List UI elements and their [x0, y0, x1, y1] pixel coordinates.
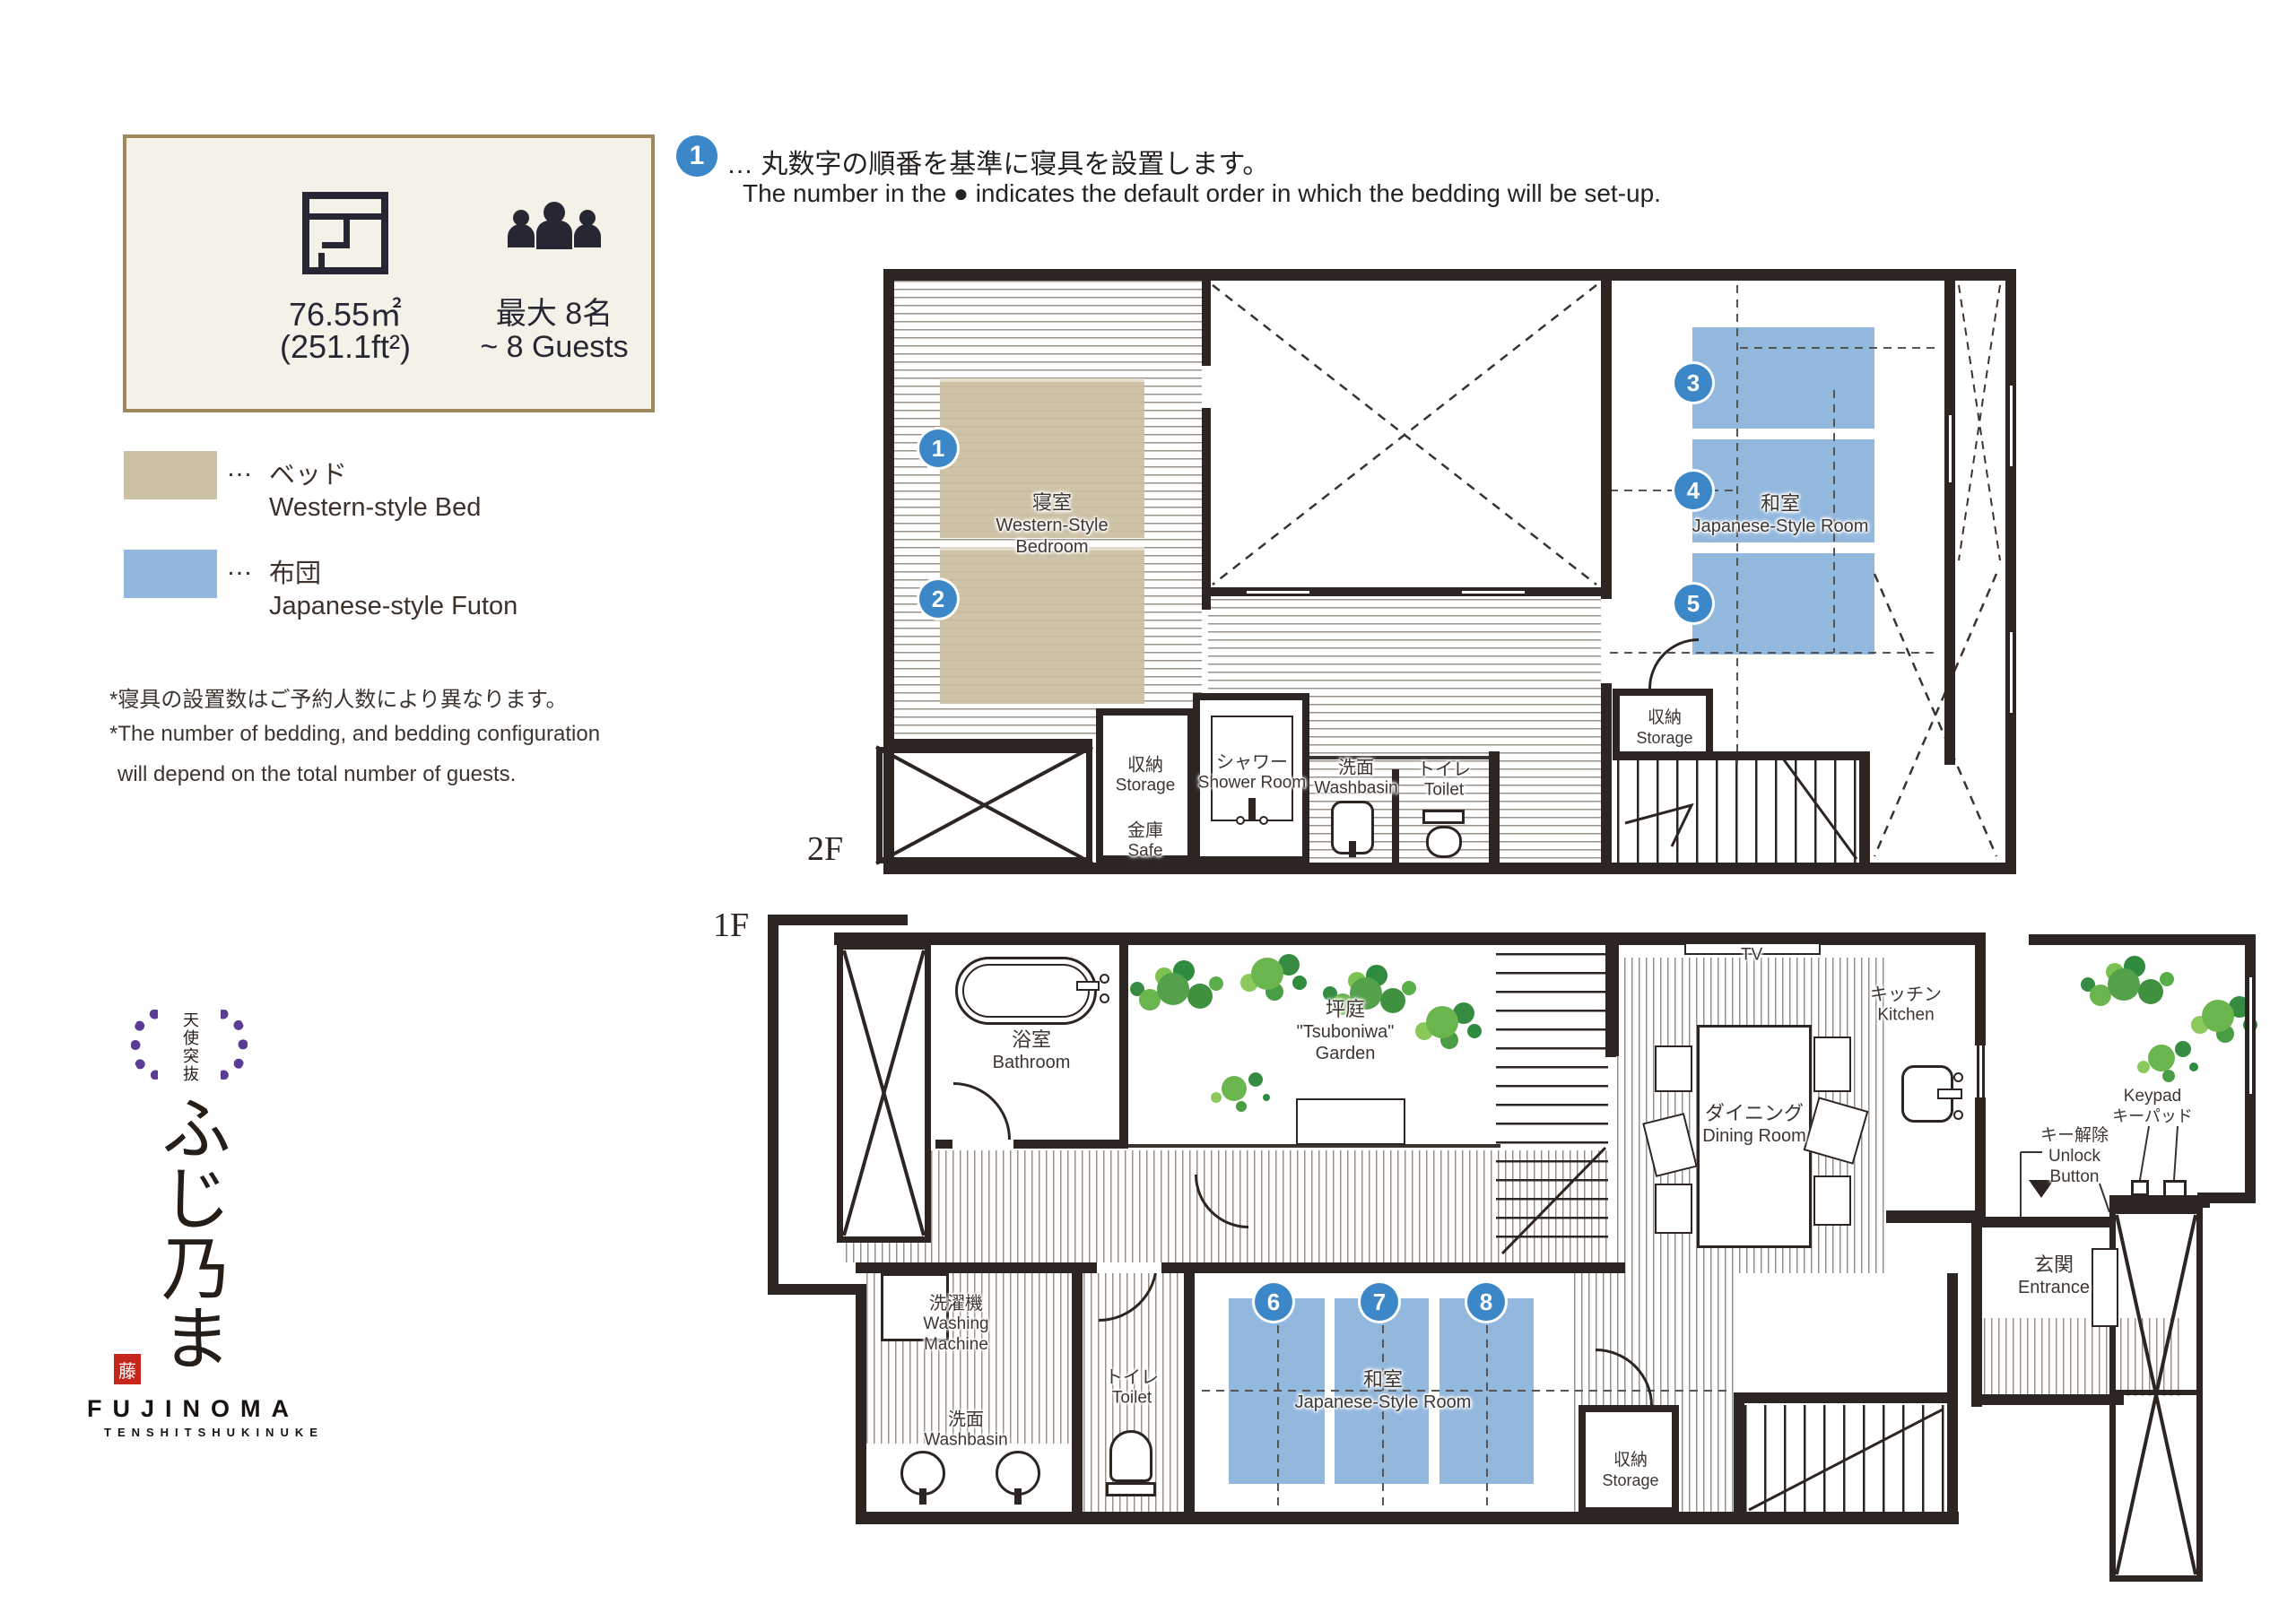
- label-jp: 収納: [1602, 1451, 1658, 1471]
- label-en: Kitchen: [1870, 1006, 1942, 1027]
- label-en: Washbasin: [924, 1431, 1007, 1452]
- bedding-badge-1: 1: [919, 429, 957, 467]
- window: [1977, 1045, 1985, 1097]
- bedding-badge-8: 8: [1467, 1283, 1505, 1321]
- wall: [1613, 751, 1870, 760]
- wall: [2197, 1193, 2256, 1203]
- shower-knob: [1236, 816, 1245, 825]
- legend-futon-label-en: Japanese-style Futon: [269, 592, 517, 621]
- room-label-toilet-1f: トイレ Toilet: [1105, 1367, 1159, 1409]
- chair: [1813, 1175, 1851, 1226]
- label-jp: ダイニング: [1702, 1102, 1806, 1125]
- room-label-garden: 坪庭 "Tsuboniwa" Garden: [1297, 998, 1395, 1064]
- bedding-order-badge: 1: [676, 135, 717, 177]
- label-jp: 和室: [1692, 492, 1869, 516]
- logo-name-calligraphy: ふじ乃ま: [155, 1092, 225, 1372]
- wall: [1944, 281, 1955, 765]
- label-jp: 洗濯機: [923, 1293, 988, 1314]
- chair: [1655, 1184, 1692, 1234]
- toilet-2f-tank: [1422, 810, 1465, 824]
- bedding-badge-2: 2: [919, 580, 957, 618]
- label-en: Button: [2040, 1167, 2109, 1187]
- chair: [1655, 1045, 1692, 1092]
- label-jp: 収納: [1116, 755, 1176, 776]
- wall: [768, 1284, 866, 1295]
- room-label-storage-2f: 収納 Storage: [1116, 755, 1176, 797]
- kitchen-tap: [1953, 1110, 1963, 1120]
- wall: [1072, 1262, 1083, 1514]
- window: [2007, 632, 2015, 713]
- label-en: Safe: [1127, 842, 1163, 863]
- wall: [883, 863, 2016, 874]
- wall: [1859, 760, 1870, 863]
- label-jp: 洗面: [1314, 758, 1397, 779]
- bath-faucet: [1100, 993, 1109, 1003]
- floor2-label: 2F: [807, 829, 843, 869]
- label-jp: 寝室: [996, 491, 1108, 515]
- label-jp: キッチン: [1870, 984, 1942, 1006]
- label-en: Dining Room: [1702, 1125, 1806, 1147]
- label-jp: 和室: [1295, 1368, 1472, 1392]
- wall: [856, 1284, 866, 1524]
- bedding-badge-4: 4: [1674, 472, 1712, 509]
- room-label-bedroom-2f: 寝室 Western-Style Bedroom: [996, 491, 1108, 558]
- label-jp: キーパッド: [2112, 1107, 2193, 1127]
- logo-mon-text: 天使突抜: [178, 1011, 202, 1083]
- wall: [1202, 281, 1211, 366]
- bath-faucet: [1100, 974, 1109, 984]
- garden-bench: [1296, 1098, 1405, 1145]
- label-jp: 玄関: [2018, 1253, 2090, 1277]
- window: [2007, 386, 2015, 466]
- basin-tap: [919, 1488, 926, 1505]
- wall: [1184, 1262, 1195, 1514]
- wall: [1734, 1392, 1744, 1524]
- label-en: Storage: [1636, 729, 1692, 749]
- logo-seal: 藤: [114, 1354, 141, 1384]
- wall: [883, 739, 1092, 750]
- floor1-label: 1F: [713, 906, 749, 945]
- room-label-japanese-room-2f: 和室 Japanese-Style Room: [1692, 492, 1869, 537]
- guests-icon: [508, 224, 535, 247]
- room-label-entrance: 玄関 Entrance: [2018, 1253, 2090, 1298]
- entrance-cabinet: [2092, 1248, 2118, 1327]
- legend-futon-dots: …: [226, 551, 253, 582]
- bedding-badge-6: 6: [1255, 1283, 1292, 1321]
- door-gap: [952, 1140, 1013, 1149]
- label-en: "Tsuboniwa": [1297, 1021, 1395, 1043]
- room-label-washbasin-2f: 洗面 Washbasin: [1314, 758, 1397, 800]
- label-en: Washing: [923, 1314, 988, 1335]
- wall: [768, 915, 778, 1295]
- room-label-japanese-room-1f: 和室 Japanese-Style Room: [1295, 1368, 1472, 1413]
- label-en: Storage: [1116, 776, 1176, 797]
- note-line-2: *The number of bedding, and bedding conf…: [109, 722, 600, 747]
- guests-max-en: ~ 8 Guests: [480, 330, 628, 365]
- label-en: Shower Room: [1198, 774, 1306, 794]
- room-label-storage-1f: 収納 Storage: [1602, 1451, 1658, 1490]
- wall: [856, 1512, 1959, 1524]
- label-en: Western-Style: [996, 515, 1108, 536]
- wall: [1489, 751, 1500, 863]
- room-label-washbasin-1f: 洗面 Washbasin: [924, 1409, 1007, 1452]
- room-label-toilet-2f: トイレ Toilet: [1417, 759, 1471, 802]
- wall: [1975, 945, 1986, 1045]
- legend-bed-dots: …: [226, 453, 253, 483]
- floor2-balcony-void: [876, 747, 1092, 863]
- legend-bed-label-jp: ベッド: [269, 454, 347, 491]
- wall: [1971, 1217, 2111, 1227]
- wall: [1119, 945, 1128, 1149]
- label-jp: 金庫: [1127, 820, 1163, 842]
- area-value-ft: (251.1ft²): [280, 328, 411, 366]
- label-unlock-button: キー解除 Unlock Button: [2040, 1126, 2109, 1187]
- bathtub-inner: [962, 964, 1090, 1018]
- label-en: Machine: [923, 1335, 988, 1356]
- kitchen-tap-body: [1937, 1089, 1962, 1099]
- label-en: Keypad: [2112, 1087, 2193, 1107]
- legend-futon-swatch: [124, 550, 217, 598]
- label-jp: 洗面: [924, 1409, 1007, 1431]
- label-en: Entrance: [2018, 1277, 2090, 1298]
- wall: [1971, 1217, 1982, 1407]
- window: [1946, 415, 1954, 482]
- bath-tap: [1076, 981, 1100, 991]
- room-label-shower-2f: シャワー Shower Room: [1198, 752, 1306, 794]
- wall: [856, 1262, 1625, 1273]
- floorplan-page: 76.55㎡ (251.1ft²) .person::before{width:…: [0, 0, 2296, 1622]
- room-label-washing-machine: 洗濯機 Washing Machine: [923, 1293, 988, 1356]
- note-line-3: will depend on the total number of guest…: [117, 762, 516, 787]
- guests-max-jp: 最大 8名: [496, 289, 613, 333]
- label-jp: トイレ: [1417, 759, 1471, 781]
- label-en: Japanese-Style Room: [1295, 1392, 1472, 1413]
- room-label-safe-2f: 金庫 Safe: [1127, 820, 1163, 863]
- window: [1247, 588, 1309, 596]
- label-en: Unlock: [2040, 1147, 2109, 1167]
- wall: [2029, 934, 2256, 945]
- wall: [1982, 1394, 2124, 1405]
- wall: [1947, 1273, 1958, 1524]
- bedding-order-note-jp: … 丸数字の順番を基準に寝具を設置します。: [726, 142, 1269, 181]
- shower-knob: [1259, 816, 1268, 825]
- label-tv: TV: [1741, 946, 1762, 967]
- label-jp: シャワー: [1198, 752, 1306, 774]
- bedding-order-note-en: The number in the ● indicates the defaul…: [743, 179, 1661, 208]
- wall: [768, 915, 908, 925]
- room-label-dining: ダイニング Dining Room: [1702, 1102, 1806, 1147]
- floorplan-icon: [302, 192, 388, 274]
- label-keypad: Keypad キーパッド: [2112, 1087, 2193, 1126]
- door-gap: [1097, 1262, 1161, 1273]
- door-sensor: [2131, 1180, 2149, 1196]
- toilet-2f-bowl: [1426, 826, 1462, 858]
- area-info-box: [123, 134, 655, 412]
- wall: [1202, 408, 1211, 610]
- label-jp: 浴室: [993, 1028, 1071, 1052]
- label-en: Japanese-Style Room: [1692, 516, 1869, 537]
- guests-icon: [574, 224, 601, 247]
- room-label-bathroom: 浴室 Bathroom: [993, 1028, 1071, 1073]
- kitchen-tap: [1953, 1072, 1963, 1082]
- door-sensor: [2163, 1180, 2187, 1198]
- label-en: Garden: [1297, 1043, 1395, 1064]
- wall: [1734, 1392, 1958, 1403]
- bedding-badge-7: 7: [1361, 1283, 1398, 1321]
- bedding-badge-3: 3: [1674, 364, 1712, 402]
- bedding-badge-5: 5: [1674, 585, 1712, 622]
- logo-brand: FUJINOMA: [87, 1395, 300, 1423]
- wall: [1975, 1097, 1986, 1210]
- label-jp: キー解除: [2040, 1126, 2109, 1147]
- wall: [2005, 281, 2016, 874]
- guests-icon: [536, 221, 572, 249]
- wall: [2109, 1195, 2210, 1208]
- label-jp: トイレ: [1105, 1367, 1159, 1389]
- label-en: Storage: [1602, 1471, 1658, 1491]
- basin-tap: [1014, 1488, 1022, 1505]
- label-jp: 坪庭: [1297, 998, 1395, 1021]
- label-en: Bedroom: [996, 536, 1108, 558]
- note-line-1: *寝具の設置数はご予約人数により異なります。: [109, 681, 567, 713]
- label-en: Toilet: [1417, 781, 1471, 802]
- label-en: TV: [1741, 946, 1762, 967]
- logo-brand-sub: TENSHITSHUKINUKE: [104, 1426, 324, 1439]
- legend-bed-label-en: Western-style Bed: [269, 493, 481, 523]
- shower-head: [1248, 798, 1256, 821]
- legend-futon-label-jp: 布団: [269, 552, 321, 590]
- toilet-1f-base: [1106, 1482, 1156, 1496]
- label-jp: 収納: [1636, 708, 1692, 729]
- window: [2247, 977, 2255, 1094]
- window: [1462, 588, 1525, 596]
- legend-bed-swatch: [124, 451, 217, 499]
- wall: [883, 269, 894, 874]
- wall: [883, 269, 2016, 281]
- room-label-kitchen: キッチン Kitchen: [1870, 984, 1942, 1027]
- wall: [1601, 281, 1612, 599]
- label-en: Washbasin: [1314, 779, 1397, 800]
- wall: [1608, 940, 1619, 1056]
- floor1-void-box: [837, 943, 931, 1243]
- label-en: Toilet: [1105, 1389, 1159, 1409]
- wall: [1601, 683, 1612, 863]
- toilet-1f-bowl: [1109, 1430, 1152, 1482]
- label-en: Bathroom: [993, 1052, 1071, 1073]
- washbasin-2f-tap: [1349, 841, 1356, 857]
- chair: [1813, 1037, 1851, 1092]
- room-label-storage2-2f: 収納 Storage: [1636, 708, 1692, 748]
